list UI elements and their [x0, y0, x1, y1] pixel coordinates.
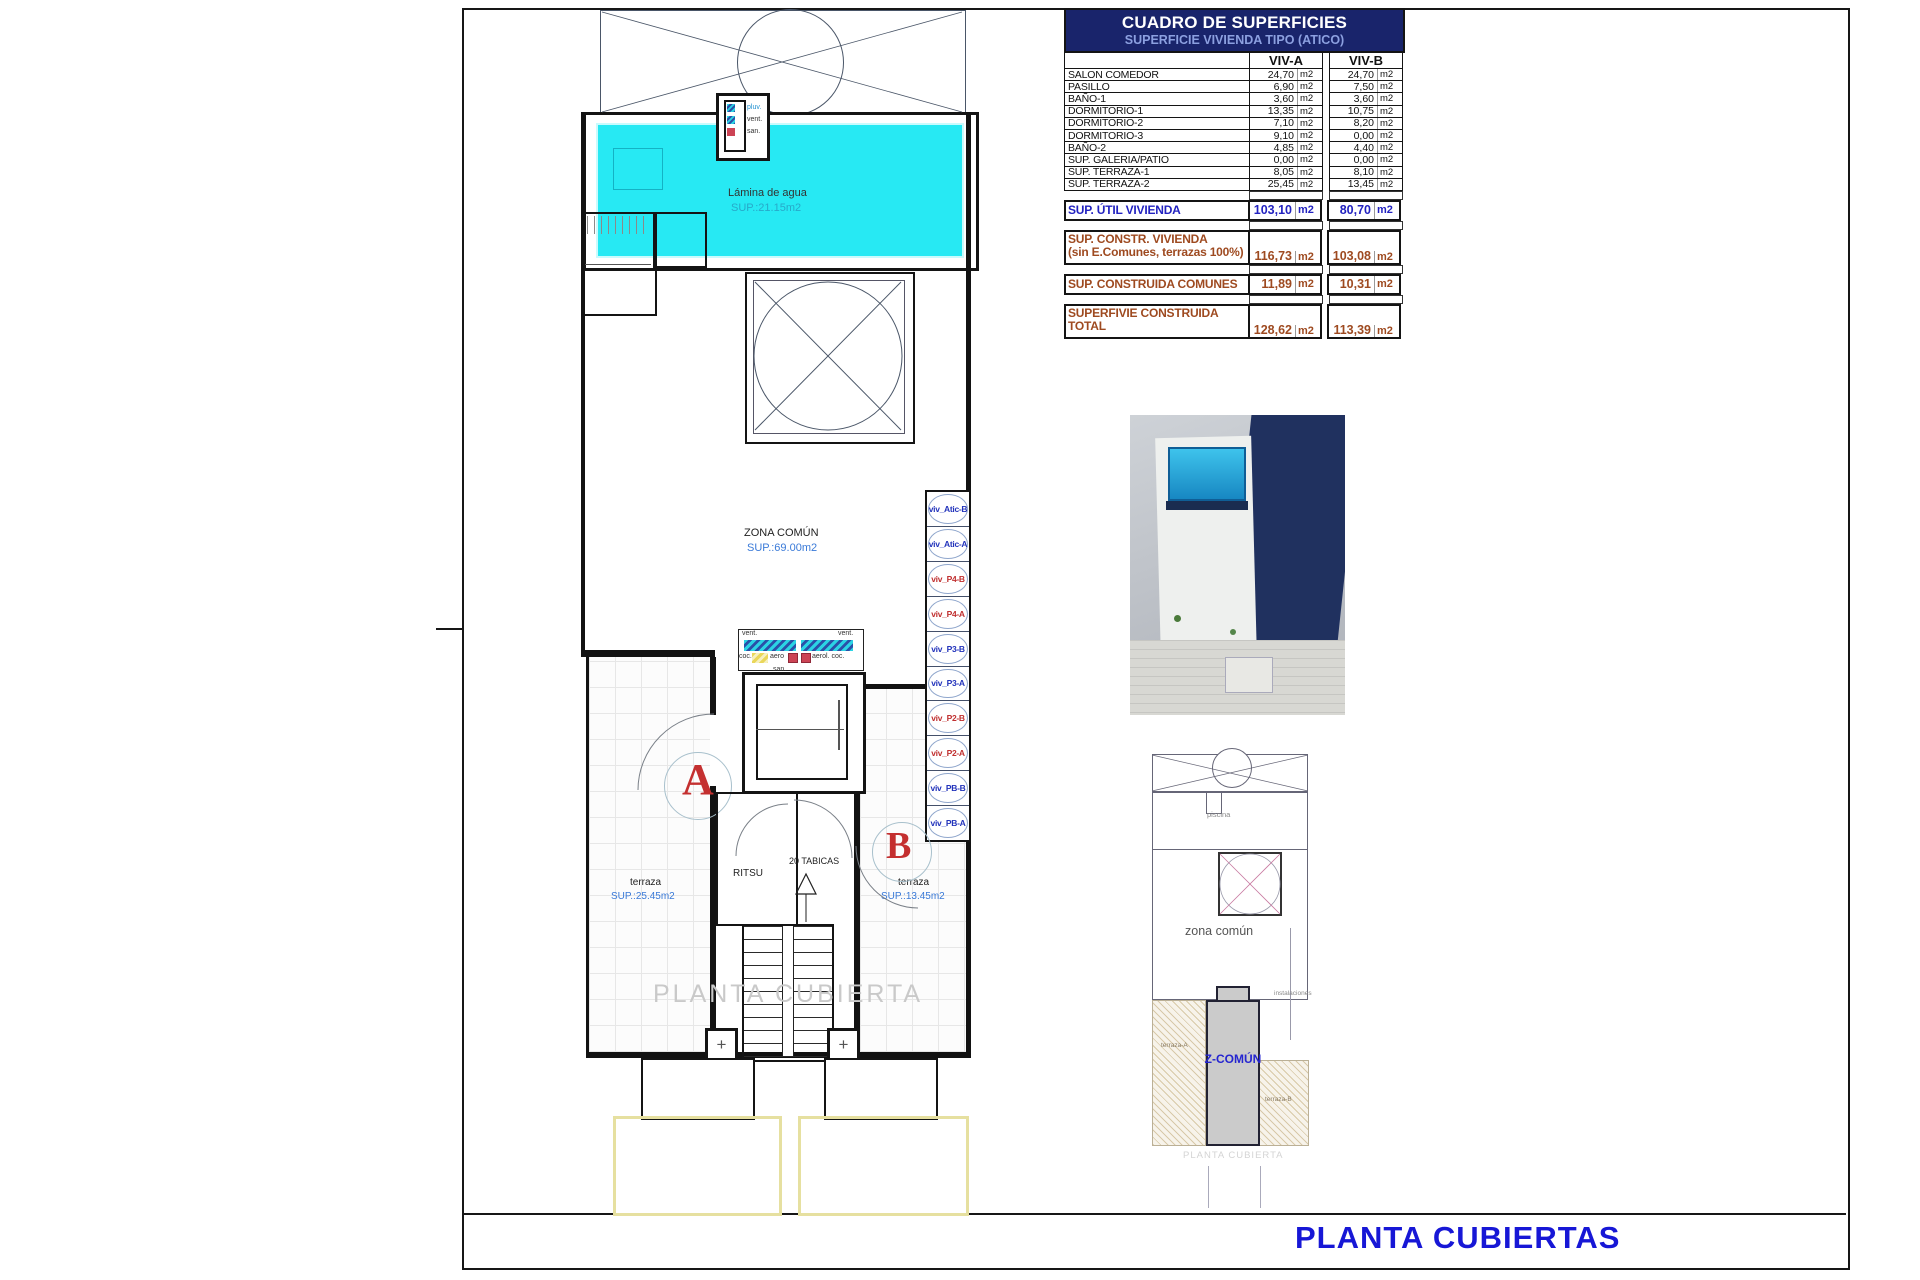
site-terraza-b [1258, 1060, 1309, 1146]
unit-b: m2 [1377, 167, 1402, 178]
value-b: 0,00 [1330, 130, 1377, 141]
viv-level-label: viv_P4-A [927, 609, 969, 619]
summary-util-a: 103,10 m2 [1248, 200, 1322, 221]
total-b-unit: m2 [1374, 325, 1399, 337]
site-pool-area [1152, 792, 1308, 850]
vent-label: vent. [747, 116, 762, 124]
unit-b: m2 [1377, 106, 1402, 117]
viv-level-label: viv_Atic-A [927, 539, 969, 549]
col-viv-b: VIV-B [1329, 52, 1403, 69]
constr-label-line1: SUP. CONSTR. VIVIENDA [1068, 233, 1246, 247]
site-instalaciones-line [1290, 928, 1291, 1040]
piscina-label: piscina [1207, 810, 1230, 819]
unit-b: m2 [1377, 118, 1402, 129]
table-column-header-row: VIV-A VIV-B [1064, 52, 1405, 69]
summary-comunes-a: 11,89 m2 [1248, 274, 1322, 295]
value-b: 4,40 [1330, 142, 1377, 153]
viv-level-label: viv_P3-B [927, 644, 969, 654]
terraza-a-area-label: SUP.:25.45m2 [611, 891, 675, 902]
terraza-b-area-label: SUP.:13.45m2 [881, 891, 945, 902]
constr-a: 116,73 [1250, 249, 1295, 263]
value-b: 8,20 [1330, 118, 1377, 129]
summary-total-a: 128,62 m2 [1248, 304, 1322, 339]
pluv-label: pluv. [747, 104, 761, 112]
surfaces-table: CUADRO DE SUPERFICIES SUPERFICIE VIVIEND… [1064, 8, 1405, 339]
value-a: 3,60 [1250, 93, 1297, 104]
comunes-b: 10,31 [1329, 276, 1374, 293]
summary-constr-label: SUP. CONSTR. VIVIENDA (sin E.Comunes, te… [1064, 230, 1250, 265]
value-a: 4,85 [1250, 142, 1297, 153]
room-label: SUP. TERRAZA-2 [1064, 178, 1250, 191]
render-pool [1168, 447, 1246, 501]
room-divider [585, 264, 651, 265]
constr-b: 103,08 [1329, 249, 1374, 263]
viv-level-label: viv_PB-B [927, 783, 969, 793]
ritsu-room [716, 792, 798, 926]
value-a: 0,00 [1250, 154, 1297, 165]
vent-right-label: vent. [838, 630, 853, 637]
spacer-row [1250, 295, 1405, 304]
wall [581, 112, 585, 655]
pool-area-label: SUP.:21.15m2 [731, 202, 801, 214]
ritsu-label: RITSU [733, 868, 763, 879]
value-b: 24,70 [1330, 69, 1377, 80]
spacer-row [1250, 221, 1405, 230]
plus-icon: + [839, 1035, 849, 1055]
viv-level-stack: viv_Atic-B viv_Atic-A viv_P4-B viv_P4-A … [925, 490, 971, 842]
elevator-rail [838, 700, 840, 750]
total-b: 113,39 [1329, 323, 1374, 337]
empty-header-cell [1064, 52, 1250, 69]
constr-a-unit: m2 [1295, 251, 1320, 263]
viv-level-label: viv_P2-B [927, 713, 969, 723]
unit-b: m2 [1377, 69, 1402, 80]
site-terraza-a [1152, 1000, 1206, 1146]
patio-skylight-inner [753, 280, 905, 434]
value-a: 8,05 [1250, 167, 1297, 178]
awning-left [613, 1116, 782, 1216]
viv-level-label: viv_P4-B [927, 574, 969, 584]
value-b: 8,10 [1330, 167, 1377, 178]
unit-b: m2 [1377, 93, 1402, 104]
vent-duct-left-icon [744, 640, 796, 651]
site-skylight [1218, 852, 1282, 916]
unit-b: m2 [1377, 142, 1402, 153]
col-viv-a: VIV-A [1249, 52, 1323, 69]
unit-a: m2 [1297, 130, 1322, 141]
drawing-sheet: PLANTA CUBIERTAS Lámina de agua SUP.:21.… [0, 0, 1920, 1280]
render-plant [1174, 615, 1181, 622]
render-plant [1230, 629, 1236, 635]
viv-level-label: viv_Atic-B [927, 504, 969, 514]
unit-a-letter: A [682, 754, 714, 805]
ladder-ticks [587, 216, 647, 234]
site-plan-caption: PLANTA CUBIERTA [1183, 1150, 1284, 1161]
summary-comunes-label: SUP. CONSTRUIDA COMUNES [1064, 274, 1250, 295]
comunes-a: 11,89 [1250, 276, 1295, 293]
table-header: CUADRO DE SUPERFICIES SUPERFICIE VIVIEND… [1064, 8, 1405, 53]
viv-level-cell: viv_PB-A [927, 806, 969, 840]
util-a: 103,10 [1250, 202, 1295, 219]
value-b: 7,50 [1330, 81, 1377, 92]
value-b: 0,00 [1330, 154, 1377, 165]
san-duct-icon [727, 128, 735, 136]
vent-duct-right-icon [801, 640, 853, 651]
table-subtitle: SUPERFICIE VIVIENDA TIPO (ATICO) [1066, 33, 1403, 47]
coc-label: coc. [739, 653, 752, 660]
summary-comunes-b: 10,31 m2 [1327, 274, 1401, 295]
wall [710, 657, 716, 715]
summary-total-b: 113,39 m2 [1327, 304, 1401, 339]
elevator-cab [756, 684, 848, 780]
tabicas-label: 20 TABICAS [789, 856, 839, 866]
constr-b-unit: m2 [1374, 251, 1399, 263]
terraza-a-label: terraza [630, 877, 661, 888]
spacer-row [1250, 265, 1405, 274]
viv-level-cell: viv_P2-A [927, 736, 969, 771]
summary-total-label: SUPERFIVIE CONSTRUIDA TOTAL [1064, 304, 1250, 339]
facade-stub-right [824, 1058, 938, 1120]
aero-label: aero [770, 653, 784, 660]
util-a-unit: m2 [1295, 202, 1320, 219]
util-b: 80,70 [1329, 202, 1374, 219]
summary-constr-b: 103,08 m2 [1327, 230, 1401, 265]
pool-label: Lámina de agua [728, 187, 807, 199]
viv-level-cell: viv_P3-A [927, 667, 969, 702]
roof-store-room [653, 212, 707, 268]
unit-b: m2 [1377, 81, 1402, 92]
unit-a: m2 [1297, 93, 1322, 104]
san-label: san. [747, 128, 760, 136]
unit-b: m2 [1377, 154, 1402, 165]
summary-util-row: SUP. ÚTIL VIVIENDA 103,10 m2 80,70 m2 [1064, 200, 1405, 221]
coc-duct-icon [752, 653, 768, 663]
total-a: 128,62 [1250, 323, 1295, 337]
awning-right [798, 1116, 969, 1216]
plus-icon: + [717, 1035, 727, 1055]
unit-a: m2 [1297, 118, 1322, 129]
viv-level-cell: viv_Atic-A [927, 527, 969, 562]
pool-inner-square [613, 148, 663, 190]
value-a: 6,90 [1250, 81, 1297, 92]
comunes-a-unit: m2 [1295, 276, 1320, 293]
viv-level-cell: viv_P2-B [927, 701, 969, 736]
table-rows: SALON COMEDOR 24,70 m2 24,70 m2 PASILLO [1064, 68, 1405, 191]
vent-left-label: vent. [742, 630, 757, 637]
unit-a: m2 [1297, 167, 1322, 178]
table-row: SUP. TERRAZA-2 25,45 m2 13,45 m2 [1064, 178, 1405, 191]
value-b: 13,45 [1330, 179, 1377, 190]
vent-duct-icon [727, 116, 735, 124]
column-marker: + [705, 1028, 738, 1061]
aero-duct-icon-2 [801, 653, 811, 663]
viv-level-label: viv_PB-A [927, 818, 969, 828]
summary-util-label: SUP. ÚTIL VIVIENDA [1064, 200, 1250, 221]
comunes-b-unit: m2 [1374, 276, 1399, 293]
value-a: 24,70 [1250, 69, 1297, 80]
viv-level-label: viv_P2-A [927, 748, 969, 758]
z-comun-label: Z-COMÚN [1198, 1052, 1268, 1066]
summary-constr-a: 116,73 m2 [1248, 230, 1322, 265]
site-plan: piscina zona común instalaciones terraza… [1150, 748, 1312, 1210]
instalaciones-label: instalaciones [1274, 990, 1312, 997]
frame-tick [436, 628, 464, 630]
zona-comun-label: ZONA COMÚN [744, 527, 819, 539]
value-b: 10,75 [1330, 106, 1377, 117]
unit-b: m2 [1377, 130, 1402, 141]
zona-comun-area-label: SUP.:69.00m2 [747, 542, 817, 554]
site-extension-line [1260, 1166, 1261, 1208]
total-label-line1: SUPERFIVIE CONSTRUIDA [1068, 307, 1246, 321]
value-a: 25,45 [1250, 179, 1297, 190]
unit-a: m2 [1297, 179, 1322, 190]
unit-a: m2 [1297, 81, 1322, 92]
facade-stub-left [641, 1058, 755, 1120]
unit-b: m2 [1377, 179, 1402, 190]
aero-duct-icon [788, 653, 798, 663]
sheet-title: PLANTA CUBIERTAS [1295, 1220, 1620, 1256]
viv-level-cell: viv_Atic-B [927, 492, 969, 527]
plan-watermark: PLANTA CUBIERTA [653, 980, 923, 1009]
util-b-unit: m2 [1374, 202, 1399, 219]
total-a-unit: m2 [1295, 325, 1320, 337]
viv-level-cell: viv_PB-B [927, 771, 969, 806]
unit-a: m2 [1297, 154, 1322, 165]
column-marker: + [827, 1028, 860, 1061]
value-a: 9,10 [1250, 130, 1297, 141]
viv-level-label: viv_P3-A [927, 678, 969, 688]
unit-b-letter: B [886, 824, 911, 868]
site-zona-comun-label: zona común [1185, 924, 1253, 938]
value-a: 7,10 [1250, 118, 1297, 129]
render-3d-image [1130, 415, 1345, 715]
summary-comunes-row: SUP. CONSTRUIDA COMUNES 11,89 m2 10,31 m… [1064, 274, 1405, 295]
wall [581, 650, 715, 657]
unit-a: m2 [1297, 142, 1322, 153]
viv-level-cell: viv_P3-B [927, 632, 969, 667]
constr-label-line2: (sin E.Comunes, terrazas 100%) [1068, 246, 1246, 260]
render-steps [1225, 657, 1273, 693]
viv-level-cell: viv_P4-A [927, 597, 969, 632]
viv-level-cell: viv_P4-B [927, 562, 969, 597]
value-b-cell: 13,45 m2 [1329, 178, 1403, 191]
pluv-duct-icon [727, 104, 735, 112]
value-a-cell: 25,45 m2 [1249, 178, 1323, 191]
site-terraza-b-label: terraza-B [1265, 1096, 1292, 1103]
render-roof-edge [1166, 501, 1248, 510]
site-core [1206, 1000, 1260, 1146]
elevator-divider [756, 729, 844, 730]
unit-a: m2 [1297, 69, 1322, 80]
spacer-row [1250, 191, 1405, 200]
summary-total-row: SUPERFIVIE CONSTRUIDA TOTAL 128,62 m2 11… [1064, 304, 1405, 339]
table-title: CUADRO DE SUPERFICIES [1066, 13, 1403, 33]
summary-util-b: 80,70 m2 [1327, 200, 1401, 221]
unit-a: m2 [1297, 106, 1322, 117]
aerol-coc-label: aerol. coc. [812, 653, 844, 660]
summary-constr-row: SUP. CONSTR. VIVIENDA (sin E.Comunes, te… [1064, 230, 1405, 265]
value-b: 3,60 [1330, 93, 1377, 104]
value-a: 13,35 [1250, 106, 1297, 117]
site-terraza-a-label: terraza-A [1161, 1042, 1188, 1049]
site-extension-line [1208, 1166, 1209, 1208]
total-label-line2: TOTAL [1068, 320, 1246, 334]
site-roof-circle [1212, 748, 1252, 788]
